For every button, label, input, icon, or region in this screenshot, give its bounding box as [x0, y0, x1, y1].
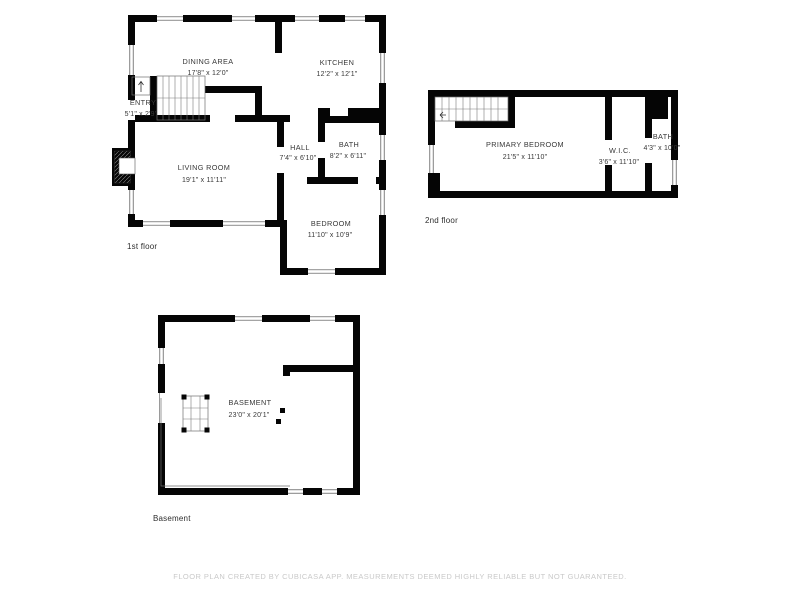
first-floor-plan: DINING AREA 17'8" x 12'0" KITCHEN 12'2" …: [110, 8, 395, 280]
window-symbol: [322, 488, 337, 495]
window-symbol: [428, 145, 435, 173]
room-label-kitchen: KITCHEN 12'2" x 12'1": [317, 58, 358, 78]
svg-text:HALL: HALL: [290, 143, 310, 152]
svg-text:17'8" x 12'0": 17'8" x 12'0": [188, 70, 229, 77]
floor-plan-page: DINING AREA 17'8" x 12'0" KITCHEN 12'2" …: [0, 0, 800, 600]
window-symbol: [143, 220, 170, 227]
second-floor-label: 2nd floor: [425, 216, 458, 225]
first-floor-label: 1st floor: [127, 242, 157, 251]
window-symbol: [379, 53, 386, 83]
staircase-symbol: [435, 97, 508, 121]
window-symbol: [128, 45, 135, 75]
room-label-living-room: LIVING ROOM 19'1" x 11'11": [178, 163, 231, 184]
support-post: [276, 408, 285, 424]
room-label-wic: W.I.C. 3'6" x 11'10": [599, 146, 640, 166]
window-symbol: [288, 488, 303, 495]
window-symbol: [158, 348, 165, 364]
room-label-hall: HALL 7'4" x 6'10": [280, 143, 317, 162]
room-label-primary-bedroom: PRIMARY BEDROOM 21'5" x 11'10": [486, 140, 564, 161]
svg-text:LIVING ROOM: LIVING ROOM: [178, 163, 231, 172]
basement-plan: BASEMENT 23'0" x 20'1": [150, 308, 365, 508]
disclaimer-text: FLOOR PLAN CREATED BY CUBICASA APP. MEAS…: [0, 572, 800, 581]
room-label-bath: BATH 8'2" x 6'11": [330, 140, 367, 160]
window-symbol: [308, 268, 335, 275]
svg-text:5'1" x 2'9": 5'1" x 2'9": [125, 111, 158, 118]
window-symbol: [235, 315, 262, 322]
svg-text:BASEMENT: BASEMENT: [229, 398, 272, 407]
window-symbol: [157, 15, 183, 22]
window-symbol: [379, 190, 386, 215]
window-symbol: [232, 15, 255, 22]
window-symbol: [310, 315, 335, 322]
svg-text:12'2" x 12'1": 12'2" x 12'1": [317, 71, 358, 78]
svg-text:DINING AREA: DINING AREA: [183, 57, 234, 66]
svg-text:KITCHEN: KITCHEN: [320, 58, 354, 67]
basement-stairs-symbol: [182, 395, 210, 433]
room-label-dining-area: DINING AREA 17'8" x 12'0": [183, 57, 234, 77]
window-symbol: [671, 160, 678, 185]
svg-text:ENTRY: ENTRY: [130, 98, 156, 107]
window-symbol: [295, 15, 319, 22]
svg-text:19'1" x 11'11": 19'1" x 11'11": [182, 177, 226, 184]
window-symbol: [128, 190, 135, 214]
svg-text:8'2" x 6'11": 8'2" x 6'11": [330, 153, 367, 160]
window-symbol: [223, 220, 265, 227]
svg-text:4'3" x 10'0": 4'3" x 10'0": [644, 145, 681, 152]
svg-text:21'5" x 11'10": 21'5" x 11'10": [503, 154, 548, 161]
svg-text:11'10" x 10'9": 11'10" x 10'9": [308, 232, 353, 239]
second-floor-plan: PRIMARY BEDROOM 21'5" x 11'10" W.I.C. 3'…: [420, 85, 688, 210]
svg-text:BEDROOM: BEDROOM: [311, 219, 351, 228]
svg-text:W.I.C.: W.I.C.: [609, 146, 631, 155]
window-symbol: [379, 135, 386, 160]
room-label-basement: BASEMENT 23'0" x 20'1": [229, 398, 272, 419]
window-symbol: [345, 15, 365, 22]
basement-floor-label: Basement: [153, 514, 191, 523]
svg-text:3'6" x 11'10": 3'6" x 11'10": [599, 159, 640, 166]
room-label-bedroom: BEDROOM 11'10" x 10'9": [308, 219, 353, 239]
svg-text:7'4" x 6'10": 7'4" x 6'10": [280, 155, 317, 162]
svg-text:BATH: BATH: [653, 132, 673, 141]
svg-text:PRIMARY BEDROOM: PRIMARY BEDROOM: [486, 140, 564, 149]
svg-text:23'0" x 20'1": 23'0" x 20'1": [229, 412, 270, 419]
svg-text:BATH: BATH: [339, 140, 359, 149]
